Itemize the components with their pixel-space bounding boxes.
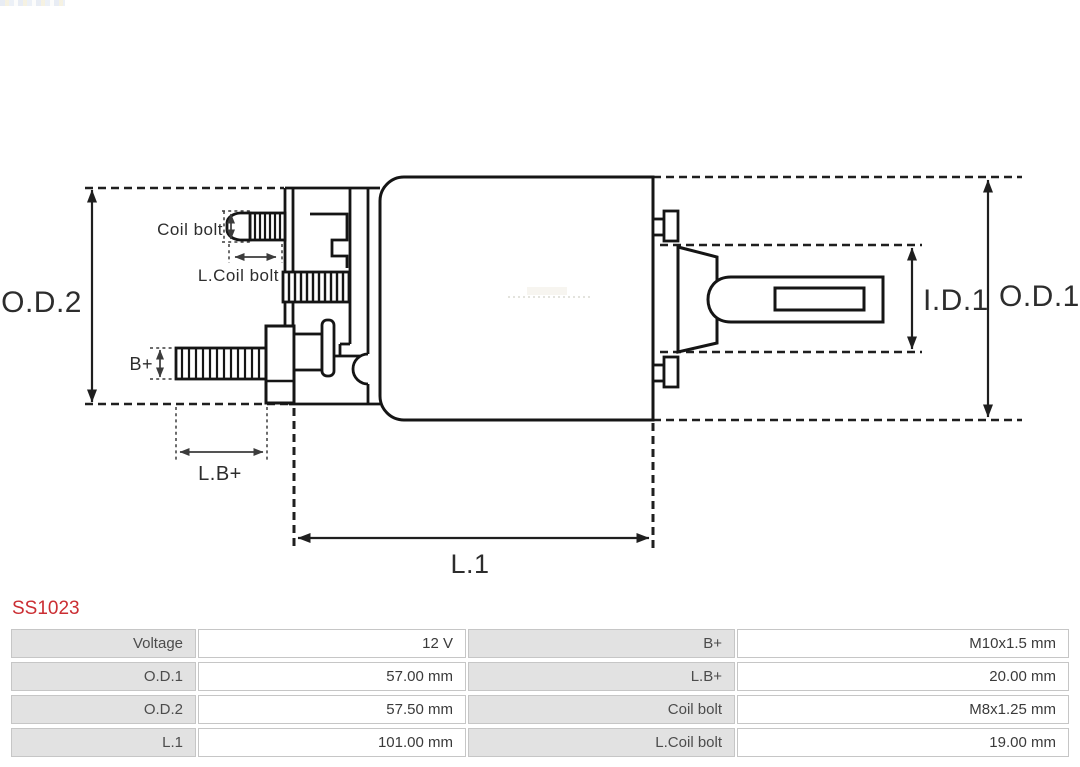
- dim-label-coil-bolt: Coil bolt: [157, 220, 223, 239]
- dim-label-l1: L.1: [450, 549, 489, 579]
- spec-value: 20.00 mm: [737, 662, 1069, 691]
- spec-label: L.Coil bolt: [468, 728, 735, 757]
- spec-label: B+: [468, 629, 735, 658]
- spec-label: L.B+: [468, 662, 735, 691]
- dim-label-id1: I.D.1: [923, 284, 989, 317]
- l1-guide-lines: [294, 408, 653, 549]
- dotted-guide-lines: [150, 211, 282, 462]
- dim-label-od2: O.D.2: [1, 286, 82, 319]
- spec-value: 57.50 mm: [198, 695, 466, 724]
- spec-value: 12 V: [198, 629, 466, 658]
- spec-value: M8x1.25 mm: [737, 695, 1069, 724]
- spec-value: M10x1.5 mm: [737, 629, 1069, 658]
- spec-label: L.1: [11, 728, 196, 757]
- spec-table: Voltage 12 V B+ M10x1.5 mm O.D.1 57.00 m…: [11, 629, 1069, 757]
- plunger-drawing: [653, 211, 883, 387]
- spec-value: 19.00 mm: [737, 728, 1069, 757]
- b-plus-bolt-drawing: [176, 320, 334, 403]
- product-dimensions-page: O.D.2 O.D.1 I.D.1 L.1 L.B+ B+ Coil bolt …: [0, 0, 1080, 767]
- dim-label-l-coil-bolt: L.Coil bolt: [198, 266, 279, 285]
- solenoid-dimension-diagram: O.D.2 O.D.1 I.D.1 L.1 L.B+ B+ Coil bolt …: [0, 0, 1080, 585]
- part-number: SS1023: [12, 598, 80, 620]
- spec-value: 101.00 mm: [198, 728, 466, 757]
- coil-bolt-drawing: [227, 213, 285, 240]
- threaded-collar-drawing: [283, 272, 349, 302]
- solenoid-body: [380, 177, 653, 420]
- spec-label: O.D.2: [11, 695, 196, 724]
- spec-label: Coil bolt: [468, 695, 735, 724]
- spec-label: O.D.1: [11, 662, 196, 691]
- spec-label: Voltage: [11, 629, 196, 658]
- dim-label-b-plus: B+: [129, 354, 153, 374]
- dim-label-lb-plus: L.B+: [198, 463, 242, 485]
- dim-label-od1: O.D.1: [999, 280, 1080, 313]
- spec-value: 57.00 mm: [198, 662, 466, 691]
